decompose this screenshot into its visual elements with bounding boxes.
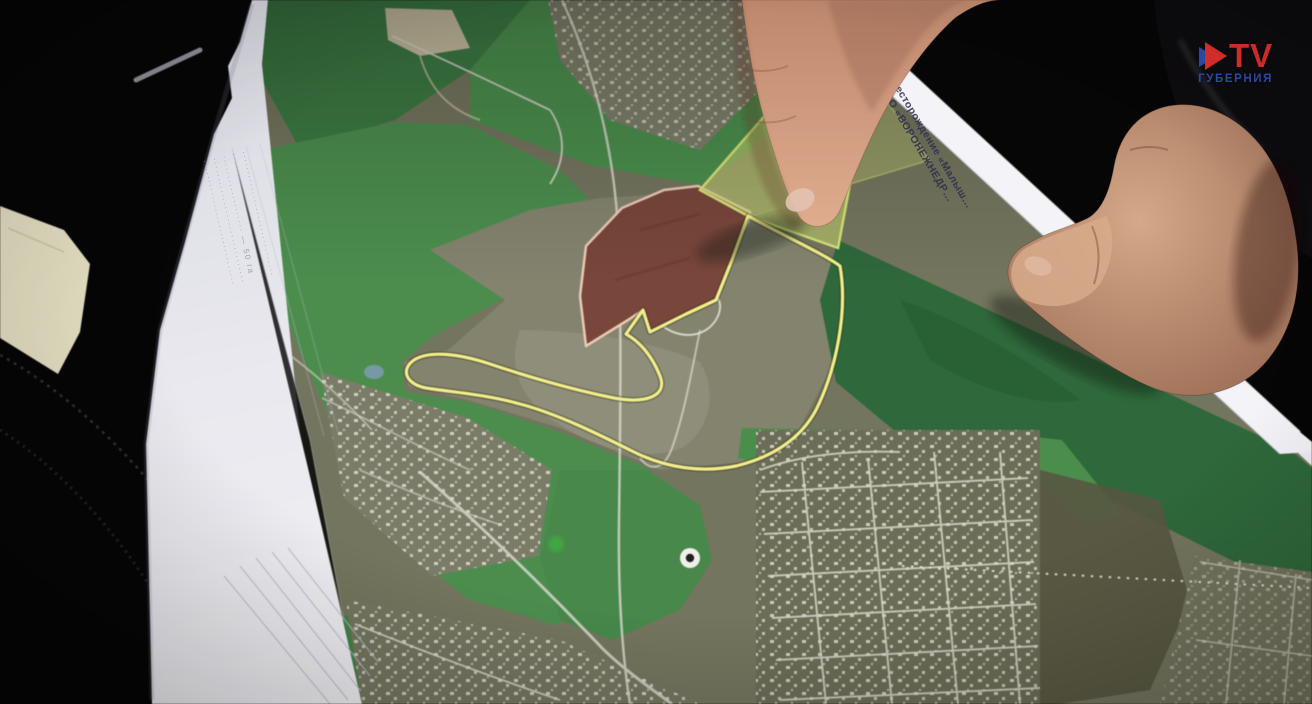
hands [0, 0, 1312, 704]
play-icon [1198, 40, 1228, 72]
logo-subtitle: ГУБЕРНИЯ [1198, 73, 1273, 85]
logo-text: TV [1229, 42, 1273, 70]
tv-logo: TV ГУБЕРНИЯ [1198, 40, 1273, 85]
pointing-finger [732, 0, 1000, 228]
video-frame: Месторождение «Малыш… ООО «ВОРОНЕЖНЕДР… … [0, 0, 1312, 704]
